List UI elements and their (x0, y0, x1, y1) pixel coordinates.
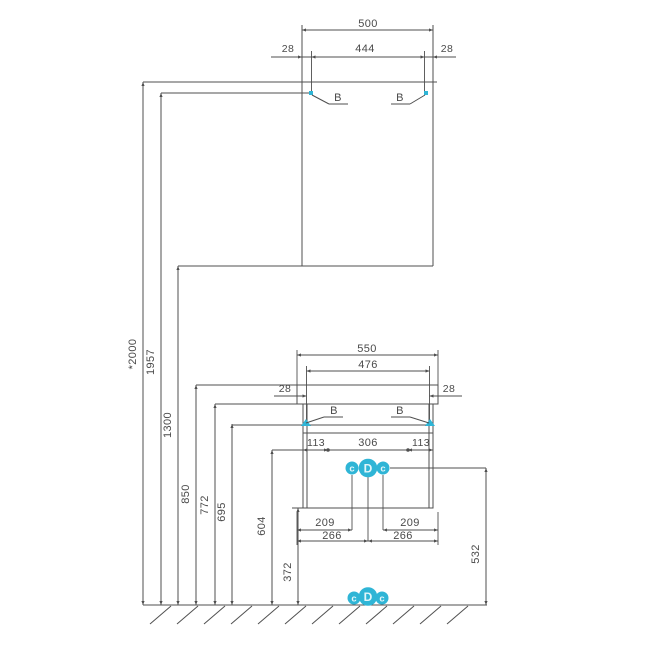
vanity-bracket-span-label: 476 (358, 359, 378, 371)
connection-letter-c-left: c (349, 464, 354, 475)
height-total-label: *2000 (127, 339, 139, 370)
connection-letter-c-right: c (380, 464, 385, 475)
mirror-bracket-b-label-right: B (396, 92, 404, 104)
center-offset-label-left: 266 (322, 530, 342, 542)
vanity-bracket-b-label-left: B (330, 405, 338, 417)
wall-connection-markers: c D c (346, 459, 390, 541)
front-dim-left-label: 113 (307, 437, 325, 449)
floor (143, 605, 487, 624)
technical-drawing-canvas: *2000 1957 1300 850 772 695 604 372 532 … (0, 0, 650, 650)
mirror-bracket-point-left (309, 91, 313, 95)
height-sink-top-label: 850 (180, 484, 192, 504)
washbasin-outline (297, 385, 438, 404)
height-mirror-bracket-label: 1957 (145, 349, 157, 375)
mirror-bracket-leader-left (312, 95, 329, 104)
vanity-bracket-leader-right (410, 417, 429, 423)
height-connection-label: 532 (470, 544, 482, 564)
front-dim-right-label: 113 (412, 437, 430, 449)
height-front-points-label: 604 (256, 516, 268, 536)
front-point-dot-left (326, 448, 330, 452)
vanity-unit: 550 476 28 28 B B 113 (274, 343, 462, 545)
floor-connection-letter-d-center: D (364, 590, 373, 604)
floor-connection-letter-c-left: c (351, 594, 356, 605)
height-mirror-bottom-label: 1300 (162, 412, 174, 438)
front-point-dot-right (406, 448, 410, 452)
mirror-bracket-b-label-left: B (334, 92, 342, 104)
height-dimensions: *2000 1957 1300 850 772 695 604 372 532 (127, 82, 486, 605)
mirror-bracket-span-label: 444 (355, 43, 375, 55)
mirror-right-margin-label: 28 (441, 43, 453, 55)
front-dim-center-label: 306 (358, 437, 378, 449)
connection-letter-d-center: D (364, 462, 373, 476)
installation-drawing: *2000 1957 1300 850 772 695 604 372 532 … (0, 0, 650, 650)
mirror-bracket-point-right (424, 91, 428, 95)
vanity-width-label: 550 (357, 343, 377, 355)
mirror-width-label: 500 (358, 18, 378, 30)
vanity-bracket-b-label-right: B (396, 405, 404, 417)
vanity-left-margin-label: 28 (279, 383, 291, 395)
drain-offset-label-left: 209 (315, 517, 335, 529)
vanity-bracket-leader-left (306, 417, 324, 423)
floor-connection-letter-c-right: c (379, 594, 384, 605)
height-vanity-bracket-label: 695 (216, 502, 228, 522)
vanity-right-margin-label: 28 (443, 383, 455, 395)
height-sink-bottom-label: 772 (199, 495, 211, 515)
drain-offset-label-right: 209 (400, 517, 420, 529)
mirror-unit: 500 28 444 28 B B (271, 18, 456, 266)
floor-hatching (150, 606, 468, 624)
mirror-bracket-leader-right (410, 95, 425, 104)
height-cabinet-bottom-label: 372 (282, 562, 294, 582)
center-offset-label-right: 266 (393, 530, 413, 542)
mirror-left-margin-label: 28 (282, 43, 294, 55)
floor-connection-markers: c D c (348, 587, 389, 606)
